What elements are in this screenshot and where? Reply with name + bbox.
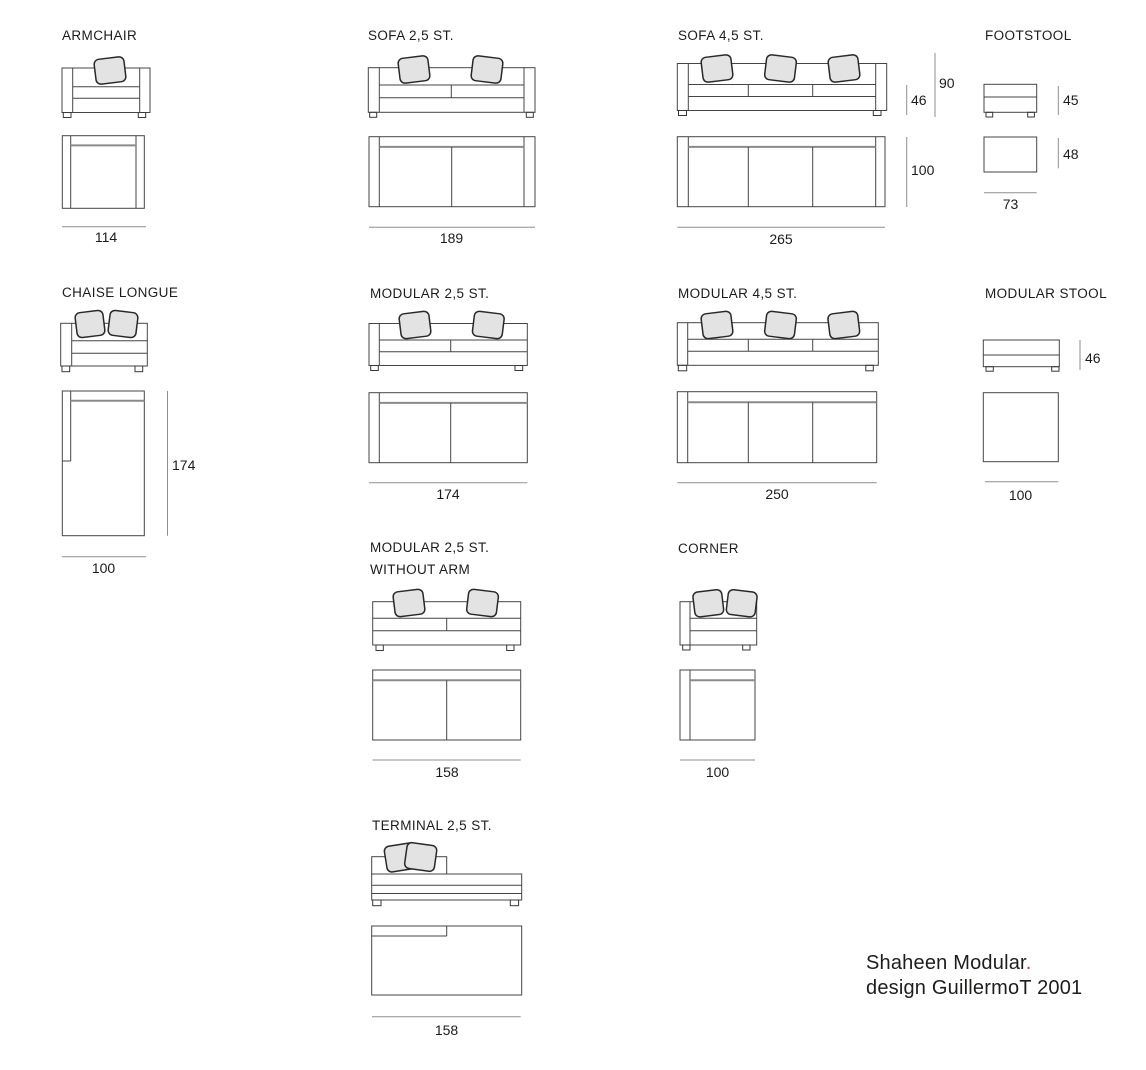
chaise-longue-label: CHAISE LONGUE <box>62 286 178 300</box>
cushion-icon <box>404 842 437 872</box>
cushion-icon <box>94 56 127 84</box>
armchair-front-view <box>62 56 150 117</box>
chaise-width-dim: 100 <box>61 561 146 576</box>
terminal-25-drawing <box>372 842 522 1017</box>
terminal-25-width-dim: 158 <box>372 1023 521 1038</box>
chaise-longue-top-view <box>62 391 144 536</box>
seat-height-dim: 46 <box>911 93 927 108</box>
product-name: Shaheen Modular <box>866 952 1026 974</box>
modular-45-width-dim: 250 <box>677 487 877 502</box>
modular-45-drawing <box>677 311 878 483</box>
label-line-1: MODULAR 2,5 ST. <box>370 537 489 559</box>
terminal-25-front-view <box>372 842 522 906</box>
depth-dim: 100 <box>911 163 934 178</box>
footstool-front-view <box>984 84 1037 117</box>
cushion-icon <box>726 589 758 617</box>
cushion-icon <box>827 311 860 339</box>
modular-25-width-dim: 174 <box>369 487 527 502</box>
sofa-25-drawing <box>368 55 535 227</box>
cushion-icon <box>466 589 499 617</box>
cushion-icon <box>472 311 505 339</box>
cushion-icon <box>75 310 106 338</box>
armchair-label: ARMCHAIR <box>62 29 137 43</box>
corner-top-view <box>680 670 755 740</box>
product-name-line: Shaheen Modular. <box>866 951 1082 976</box>
modular-45-top-view <box>677 392 876 463</box>
armchair-top-view <box>62 136 144 209</box>
cushion-icon <box>701 54 734 82</box>
sofa-45-front-view <box>677 54 886 115</box>
footstool-label: FOOTSTOOL <box>985 29 1072 43</box>
corner-label: CORNER <box>678 542 739 556</box>
footstool-top-view <box>984 137 1037 172</box>
modular-stool-label: MODULAR STOOL <box>985 287 1107 301</box>
modular-stool-drawing <box>983 340 1080 482</box>
cushion-icon <box>399 311 432 339</box>
armchair-drawing <box>62 56 150 226</box>
sofa-45-label: SOFA 4,5 ST. <box>678 29 764 43</box>
armchair-width-dim: 114 <box>62 230 150 245</box>
corner-drawing <box>680 589 758 760</box>
sofa-45-drawing <box>677 53 935 227</box>
cushion-icon <box>471 55 504 83</box>
terminal-25-top-view <box>372 926 522 995</box>
corner-front-view <box>680 589 758 650</box>
accent-period: . <box>1026 952 1032 974</box>
footstool-depth-dim: 48 <box>1063 147 1079 162</box>
chaise-length-dim: 174 <box>172 458 195 473</box>
total-height-dim: 90 <box>939 76 955 91</box>
cushion-icon <box>398 55 431 83</box>
footer-credit: Shaheen Modular. design GuillermoT 2001 <box>866 951 1082 1001</box>
label-line-2: WITHOUT ARM <box>370 559 489 581</box>
modular-25-front-view <box>369 311 527 371</box>
catalog-page: ARMCHAIR SOFA 2,5 ST. SOFA 4,5 ST. FOOTS… <box>0 0 1146 1070</box>
modular-stool-width-dim: 100 <box>983 488 1058 503</box>
cushion-icon <box>828 54 861 82</box>
sofa-25-top-view <box>369 137 535 207</box>
furniture-line-art <box>0 0 1146 1070</box>
terminal-25-label: TERMINAL 2,5 ST. <box>372 819 492 833</box>
modular-25-without-arm-front-view <box>373 589 521 651</box>
sofa-25-front-view <box>368 55 535 117</box>
modular-stool-top-view <box>983 393 1058 462</box>
modular-45-front-view <box>677 311 878 371</box>
footstool-height-dim: 45 <box>1063 93 1079 108</box>
sofa-45-top-view <box>677 137 885 207</box>
corner-width-dim: 100 <box>680 765 755 780</box>
modular-stool-front-view <box>983 340 1059 371</box>
cushion-icon <box>393 589 426 617</box>
cushion-icon <box>692 589 724 617</box>
cushion-icon <box>108 310 139 338</box>
modular-25-without-arm-drawing <box>373 589 521 760</box>
modular-25-top-view <box>369 393 527 463</box>
sofa-45-width-dim: 265 <box>677 232 885 247</box>
modular-stool-height-dim: 46 <box>1085 351 1101 366</box>
modular-25-without-arm-top-view <box>373 670 521 740</box>
modular-25-without-arm-label: MODULAR 2,5 ST. WITHOUT ARM <box>370 537 489 580</box>
design-credit-line: design GuillermoT 2001 <box>866 976 1082 1001</box>
modular-25-drawing <box>369 311 527 483</box>
chaise-longue-drawing <box>61 310 168 557</box>
sofa-25-label: SOFA 2,5 ST. <box>368 29 454 43</box>
modular-45-label: MODULAR 4,5 ST. <box>678 287 797 301</box>
modular-25-label: MODULAR 2,5 ST. <box>370 287 489 301</box>
cushion-icon <box>764 311 797 339</box>
cushion-icon <box>764 54 797 82</box>
sofa-25-width-dim: 189 <box>368 231 535 246</box>
modular-25-without-arm-width-dim: 158 <box>373 765 521 780</box>
cushion-icon <box>701 311 734 339</box>
footstool-width-dim: 73 <box>984 197 1037 212</box>
chaise-longue-front-view <box>61 310 148 372</box>
footstool-drawing <box>984 84 1058 192</box>
